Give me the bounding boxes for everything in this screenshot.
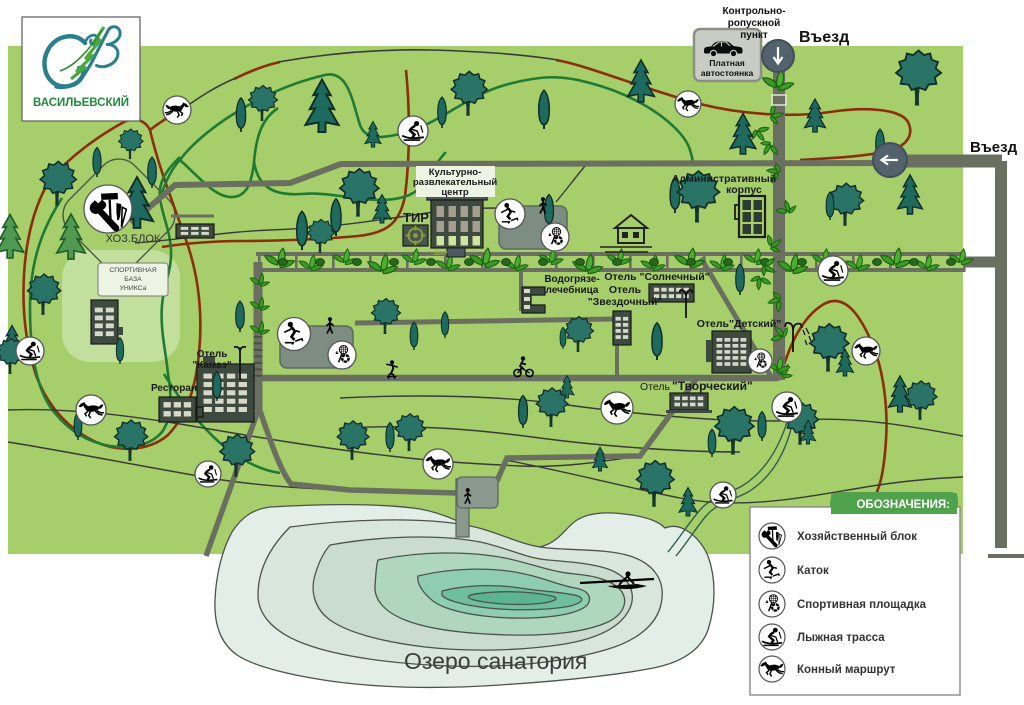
svg-text:лечебница: лечебница (546, 284, 599, 296)
svg-text:БАР: БАР (434, 250, 448, 257)
svg-text:Хозяйственный блок: Хозяйственный блок (797, 531, 917, 543)
svg-text:Контрольно-: Контрольно- (722, 6, 785, 17)
svg-text:Водогрязе-: Водогрязе- (544, 274, 599, 285)
svg-text:"Творческий": "Творческий" (672, 379, 753, 393)
svg-text:Отель: Отель (197, 349, 228, 360)
svg-text:"Звездочный": "Звездочный" (588, 296, 663, 308)
svg-text:ХОЗ.БЛОК: ХОЗ.БЛОК (106, 233, 161, 245)
svg-text:Каток: Каток (797, 565, 829, 577)
svg-text:ВАСИЛЬЕВСКИЙ: ВАСИЛЬЕВСКИЙ (33, 96, 129, 109)
svg-text:Ресторан: Ресторан (151, 383, 197, 394)
svg-text:Спортивная площадка: Спортивная площадка (797, 599, 927, 611)
svg-text:центр: центр (441, 187, 469, 198)
svg-text:Отель"Детский": Отель"Детский" (697, 318, 782, 330)
svg-text:корпус: корпус (726, 184, 762, 196)
svg-text:Въезд: Въезд (970, 139, 1018, 156)
svg-text:Платная: Платная (709, 58, 745, 68)
svg-text:ТИР: ТИР (403, 210, 429, 225)
svg-text:Отель "Солнечный": Отель "Солнечный" (604, 271, 709, 283)
svg-text:УНИКСа: УНИКСа (120, 285, 147, 292)
svg-text:БАЗА: БАЗА (124, 276, 142, 283)
svg-text:Отель: Отель (640, 381, 670, 393)
svg-text:СПОРТИВНАЯ: СПОРТИВНАЯ (109, 267, 156, 274)
svg-text:Озеро санатория: Озеро санатория (404, 648, 587, 674)
svg-text:ропускной: ропускной (728, 18, 780, 29)
svg-text:Отель: Отель (609, 284, 642, 296)
svg-text:автостоянка: автостоянка (701, 68, 754, 78)
svg-text:пункт: пункт (740, 30, 768, 41)
svg-text:Конный маршрут: Конный маршрут (797, 664, 896, 676)
svg-text:Лыжная трасса: Лыжная трасса (797, 632, 885, 644)
svg-text:"Камаз": "Камаз" (192, 360, 231, 371)
svg-text:Въезд: Въезд (799, 29, 849, 46)
svg-text:ОБОЗНАЧЕНИЯ:: ОБОЗНАЧЕНИЯ: (856, 499, 950, 511)
